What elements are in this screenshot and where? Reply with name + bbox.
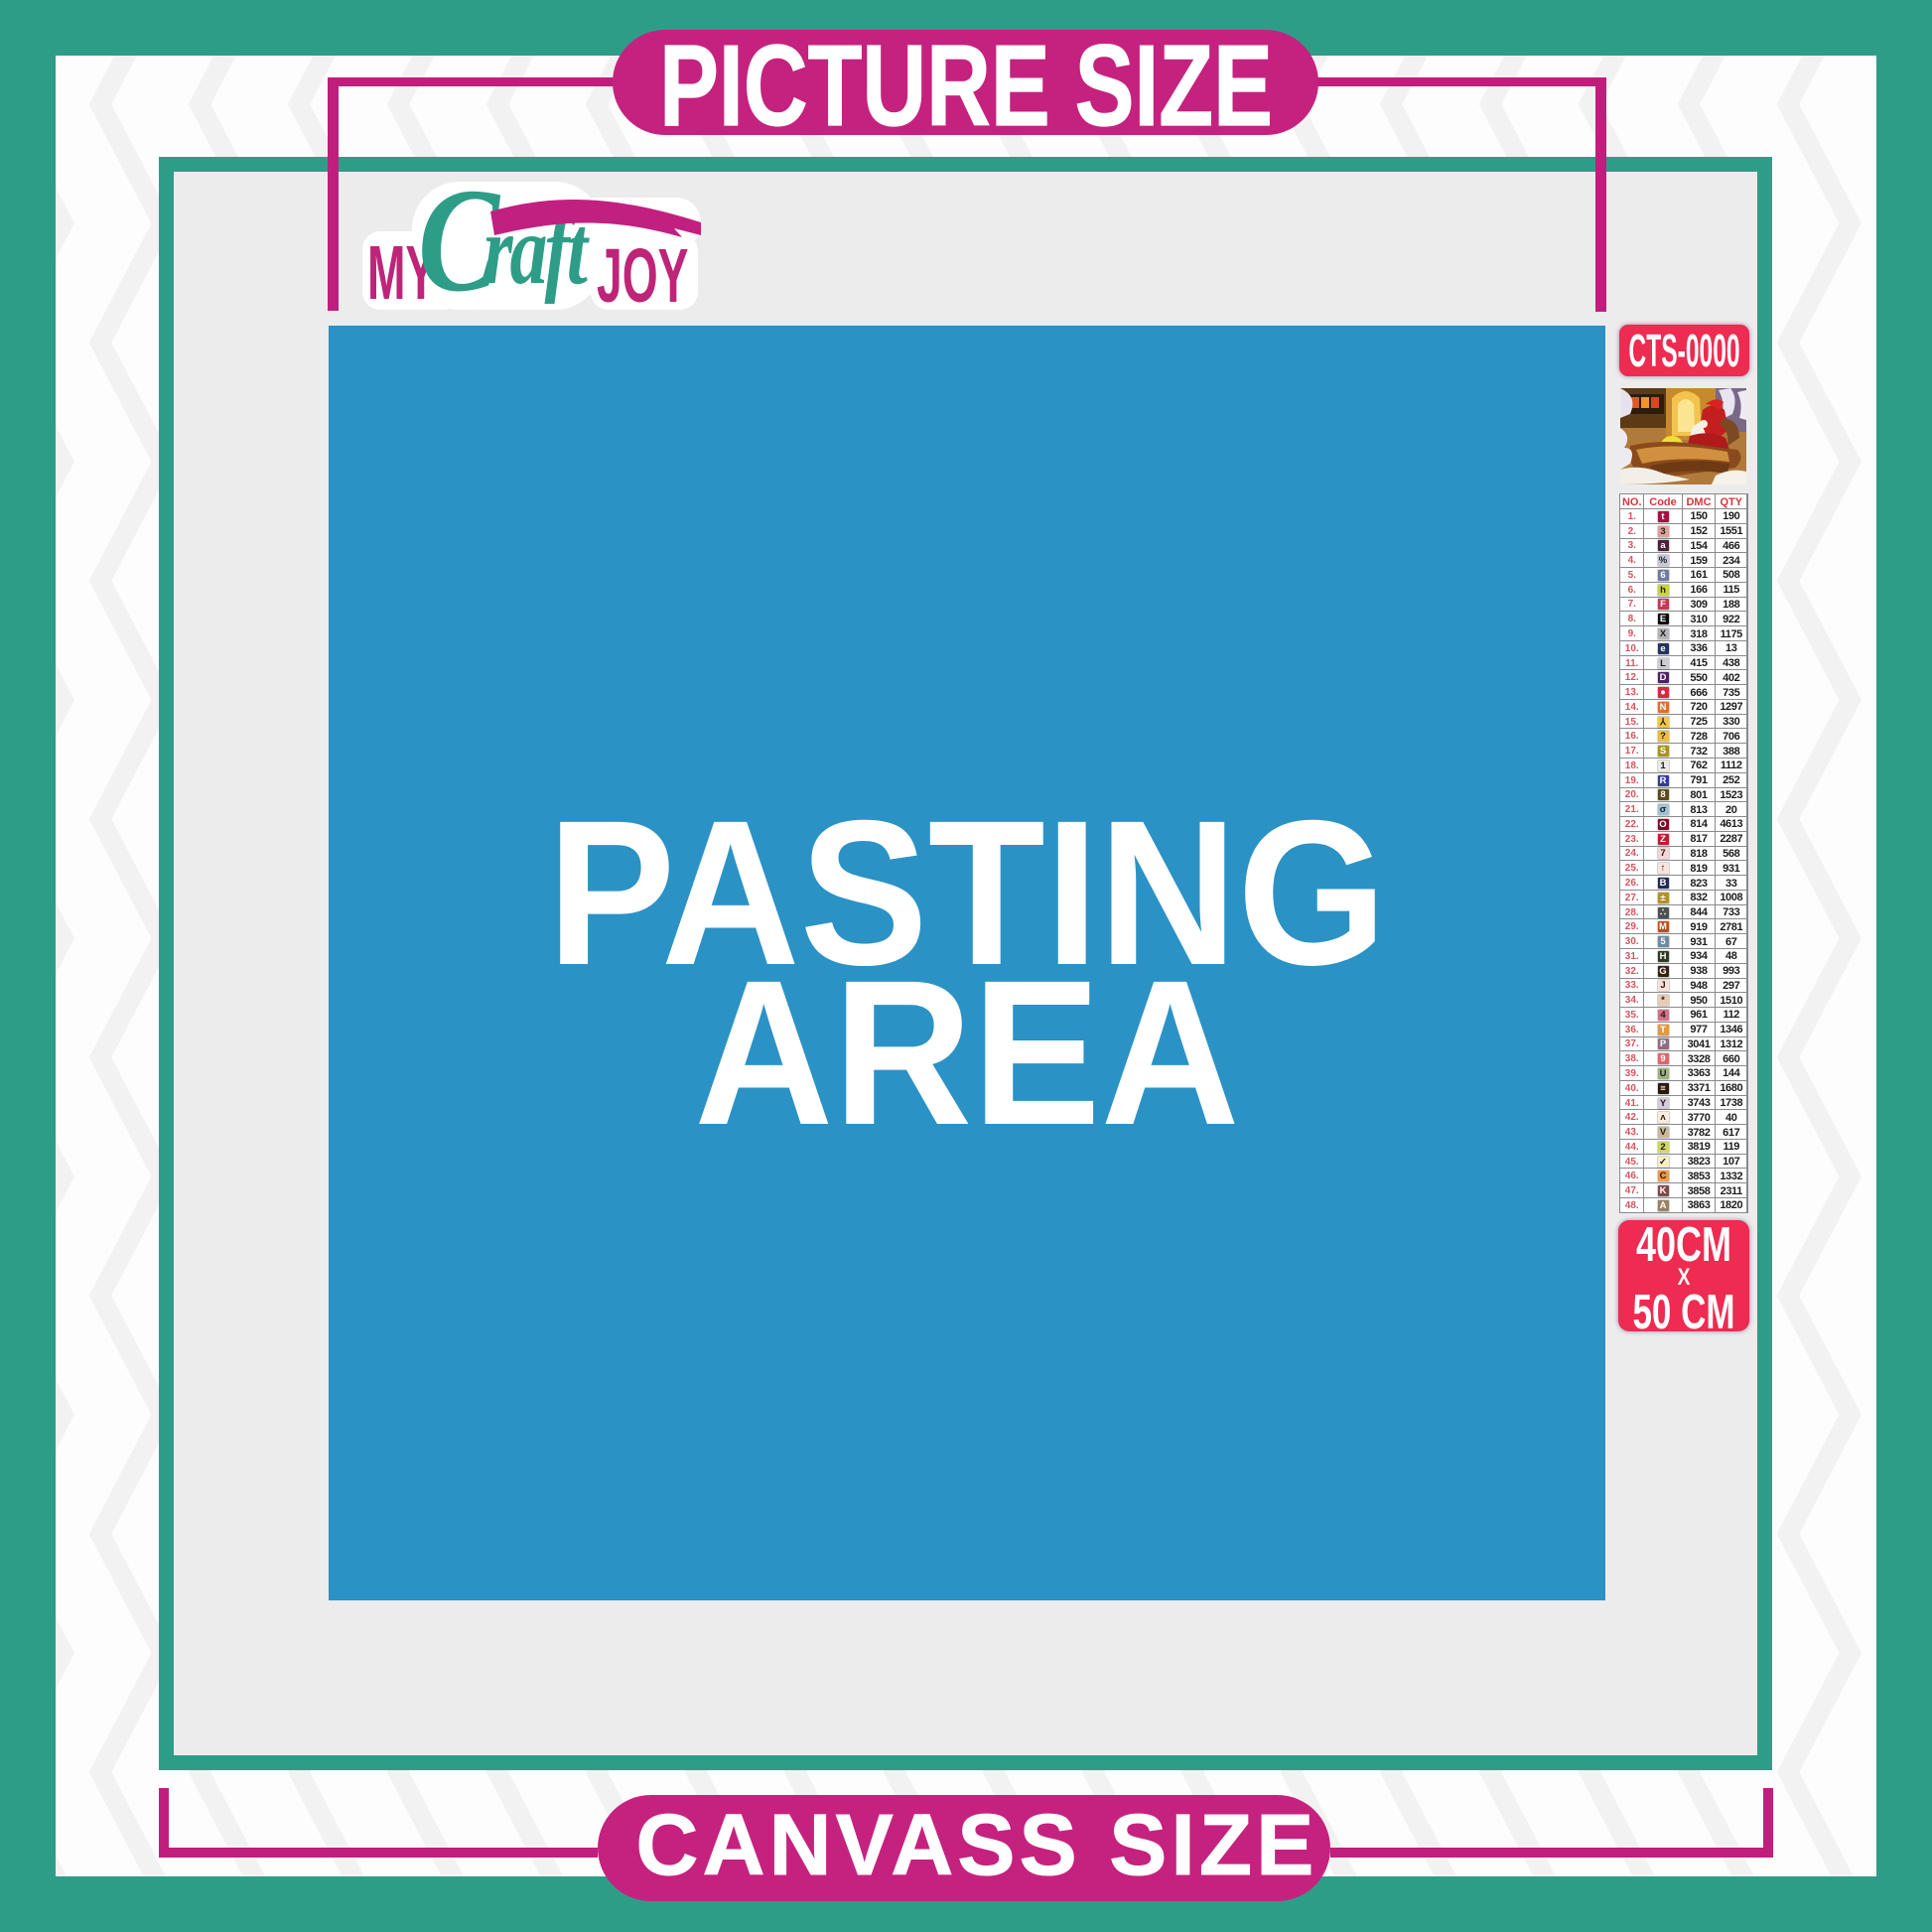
svg-text:JOY: JOY	[597, 234, 688, 310]
